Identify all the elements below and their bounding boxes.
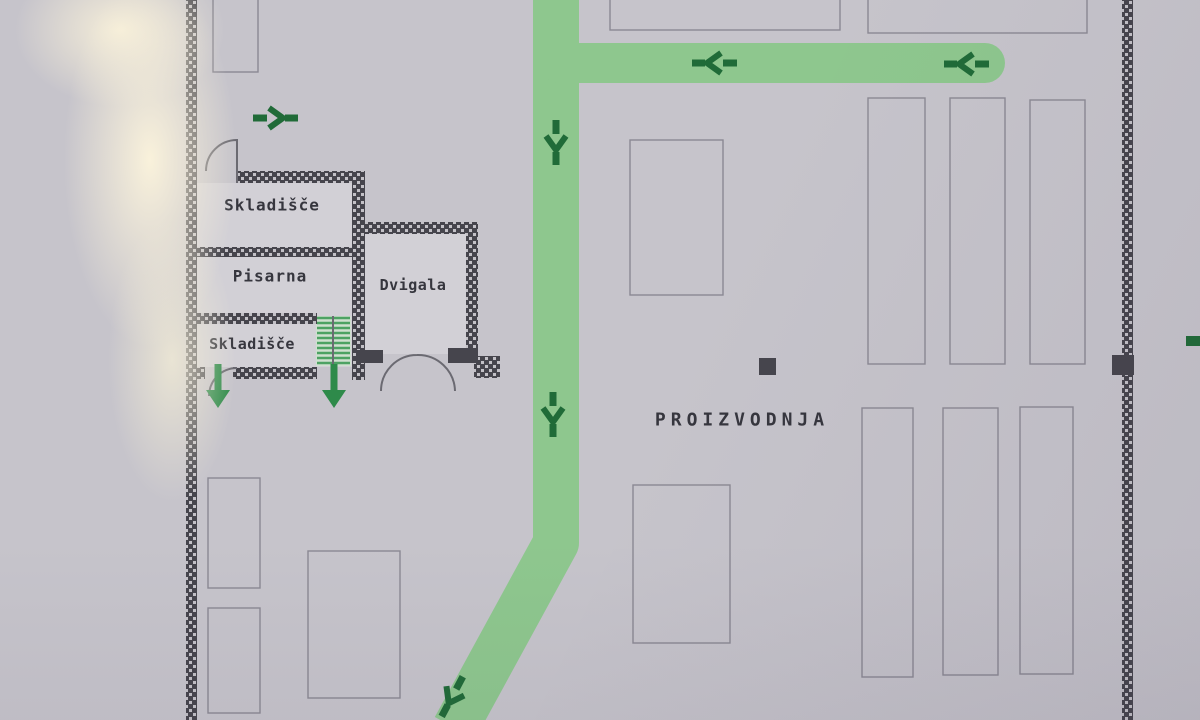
room-label-skladisce-bottom: Skladišče: [209, 335, 295, 353]
floor-plan-drawing: [0, 0, 1200, 720]
route-marker-dash-icon: [1186, 336, 1200, 346]
room-label-skladisce-top: Skladišče: [224, 196, 320, 215]
elevator-room-interior: [365, 234, 466, 354]
machine-outline: [308, 551, 400, 698]
machine-outline: [208, 608, 260, 713]
route-arrows: [253, 53, 989, 720]
route-arrow-right-icon: [253, 108, 298, 128]
area-label-proizvodnja: PROIZVODNJA: [655, 410, 829, 431]
wall-segment: [197, 313, 317, 324]
machine-outline: [943, 408, 998, 675]
stairs-icon: [316, 316, 351, 366]
exit-arrow-down-icon: [322, 364, 346, 408]
wall-segment: [466, 222, 478, 353]
wall-segment: [197, 247, 352, 257]
double-door-arc: [381, 355, 455, 391]
machine-outline: [208, 478, 260, 588]
machine-outline: [213, 0, 258, 72]
machine-outline: [950, 98, 1005, 364]
machine-outline: [1020, 407, 1073, 674]
machine-outline: [1030, 100, 1085, 364]
machine-outline: [868, 98, 925, 364]
wall-segment: [233, 367, 317, 379]
wall-segment: [352, 171, 365, 380]
door-post: [448, 348, 478, 363]
machine-outline: [868, 0, 1087, 33]
machine-outline: [610, 0, 840, 30]
wall-post: [1112, 355, 1134, 375]
wall-left: [186, 0, 197, 720]
wall-segment: [352, 222, 478, 234]
evacuation-route: [455, 0, 985, 720]
pillar: [759, 358, 776, 375]
machine-outline: [630, 140, 723, 295]
wall-segment: [237, 171, 365, 183]
room-label-dvigala: Dvigala: [380, 276, 447, 294]
wall-segment: [197, 367, 205, 379]
machine-outline: [862, 408, 913, 677]
door-arc: [206, 140, 237, 183]
machine-outline: [633, 485, 730, 643]
door-post: [357, 350, 383, 363]
room-label-pisarna: Pisarna: [233, 267, 307, 286]
floor-plan-photo: Skladišče Pisarna Skladišče Dvigala PROI…: [0, 0, 1200, 720]
